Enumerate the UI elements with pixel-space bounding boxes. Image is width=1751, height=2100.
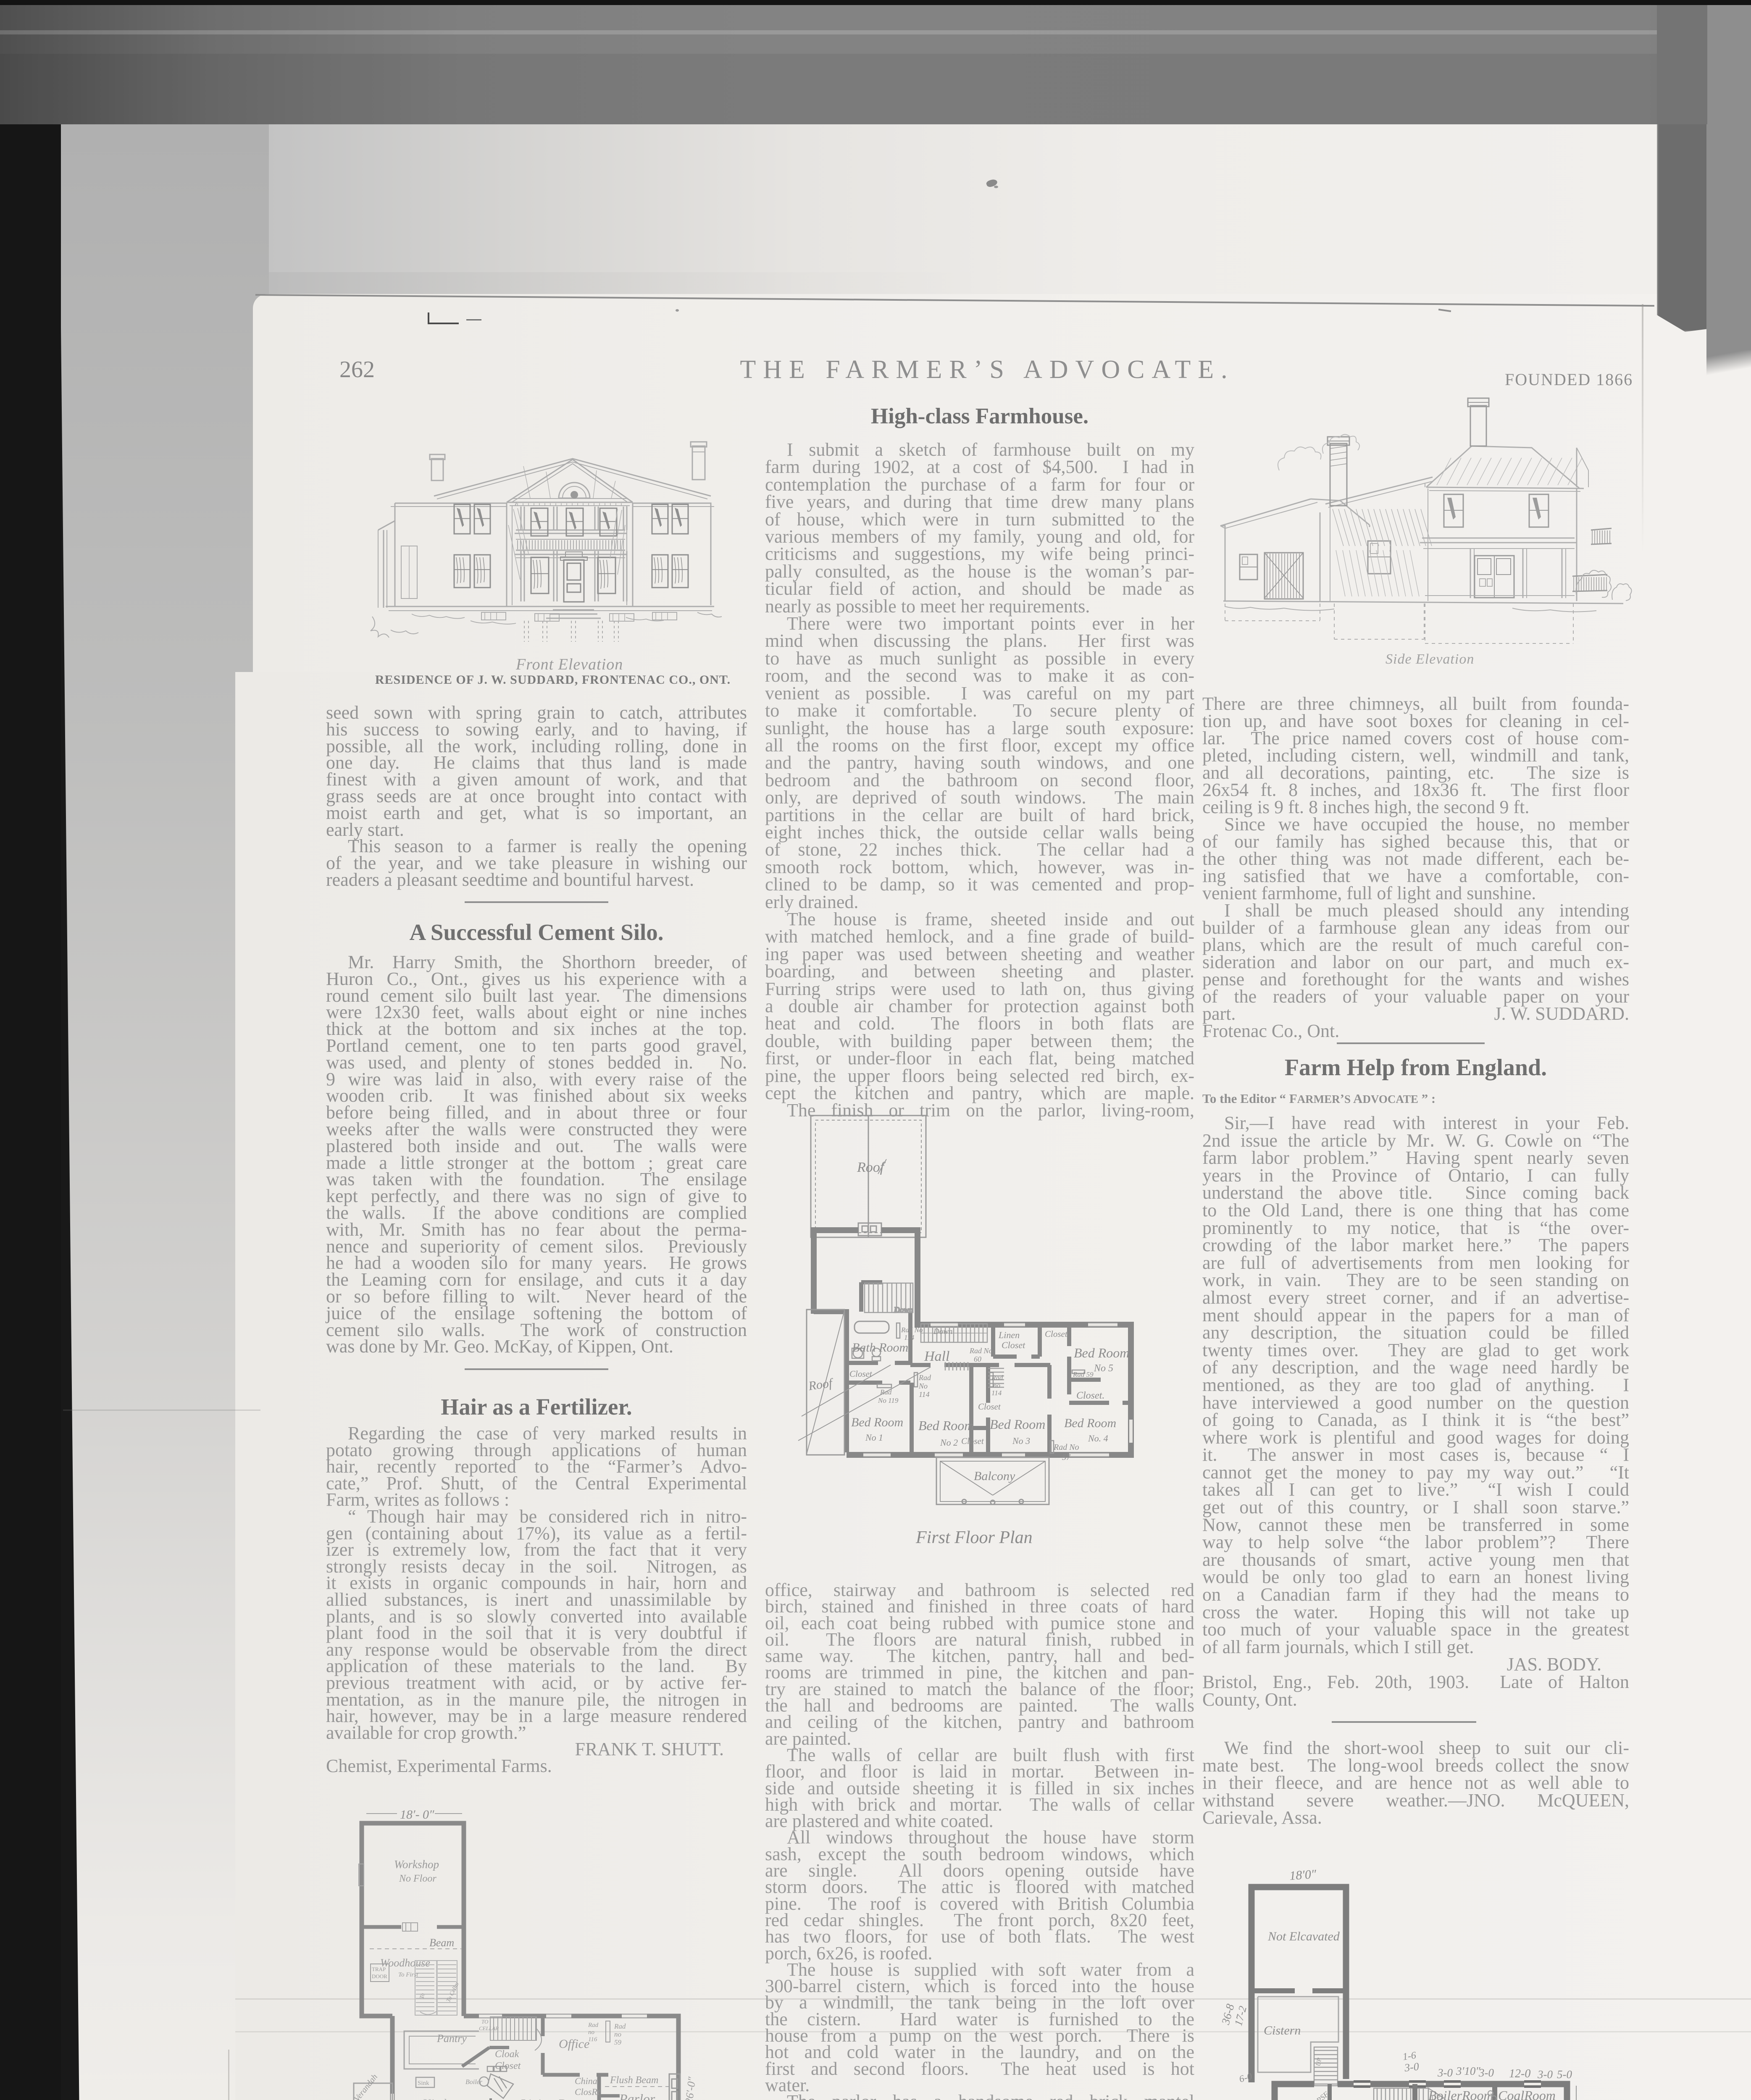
svg-text:Cloak: Cloak bbox=[495, 2049, 519, 2060]
svg-text:Rad No: Rad No bbox=[901, 1326, 923, 1334]
svg-text:Sink: Sink bbox=[418, 2080, 429, 2087]
svg-text:No 119: No 119 bbox=[878, 1396, 899, 1404]
svg-text:CoalRoom: CoalRoom bbox=[1498, 2088, 1556, 2100]
svg-text:ClosRt: ClosRt bbox=[575, 2087, 600, 2097]
svg-text:Down: Down bbox=[933, 1327, 952, 1336]
svg-text:18′0″: 18′0″ bbox=[1289, 1867, 1317, 1883]
svg-text:BoilerRoom: BoilerRoom bbox=[1428, 2088, 1493, 2100]
svg-text:CELLAR: CELLAR bbox=[479, 2025, 499, 2032]
svg-text:Hall: Hall bbox=[924, 1349, 949, 1364]
svg-text:Kitchen: Kitchen bbox=[422, 2097, 461, 2100]
svg-text:First Floor Plan: First Floor Plan bbox=[915, 1528, 1033, 1547]
svg-text:Woodhouse: Woodhouse bbox=[380, 1957, 430, 1969]
svg-text:Linen: Linen bbox=[998, 1330, 1020, 1340]
svg-text:Rad: Rad bbox=[918, 1373, 931, 1382]
svg-text:Parlor: Parlor bbox=[619, 2091, 655, 2100]
svg-text:Not Elcavated: Not Elcavated bbox=[1267, 1929, 1340, 1943]
svg-text:Verandah: Verandah bbox=[352, 2072, 380, 2100]
svg-text:3-0: 3-0 bbox=[1537, 2068, 1553, 2081]
svg-text:DOOR: DOOR bbox=[372, 1973, 387, 1979]
svg-text:Closet: Closet bbox=[1002, 1340, 1025, 1350]
svg-text:Bath Room: Bath Room bbox=[852, 1341, 908, 1354]
svg-text:Bed Room: Bed Room bbox=[1064, 1416, 1116, 1430]
svg-text:Living Room: Living Room bbox=[520, 2096, 589, 2100]
svg-text:Rad 59: Rad 59 bbox=[1073, 1370, 1094, 1378]
svg-text:Pantry: Pantry bbox=[436, 2032, 467, 2045]
svg-text:5-0: 5-0 bbox=[1557, 2068, 1572, 2081]
svg-text:Rad No: Rad No bbox=[969, 1347, 993, 1355]
svg-text:18′- 0″: 18′- 0″ bbox=[400, 1808, 434, 1822]
svg-text:To: To bbox=[419, 1993, 426, 2000]
svg-text:57: 57 bbox=[1062, 1453, 1071, 1462]
svg-text:26′-0″: 26′-0″ bbox=[683, 2076, 698, 2100]
svg-text:Closet: Closet bbox=[978, 1402, 1001, 1412]
svg-text:Bed Room: Bed Room bbox=[1074, 1345, 1129, 1360]
svg-text:Rad: Rad bbox=[614, 2022, 626, 2030]
svg-text:3-0: 3-0 bbox=[1478, 2066, 1494, 2079]
svg-text:Beam: Beam bbox=[429, 1937, 454, 1949]
svg-text:Rad No: Rad No bbox=[1053, 1443, 1079, 1452]
svg-text:TRAP: TRAP bbox=[372, 1966, 386, 1972]
svg-text:Flush Beam: Flush Beam bbox=[610, 2075, 658, 2086]
svg-text:Rad: Rad bbox=[991, 1374, 1003, 1382]
svg-text:114: 114 bbox=[919, 1390, 930, 1399]
svg-text:116: 116 bbox=[588, 2036, 597, 2043]
svg-text:Workshop: Workshop bbox=[394, 1858, 439, 1871]
svg-text:60: 60 bbox=[974, 1355, 981, 1363]
svg-text:To Cellar: To Cellar bbox=[445, 1980, 461, 2003]
svg-text:No. 4: No. 4 bbox=[1088, 1433, 1108, 1444]
svg-text:59: 59 bbox=[614, 2038, 622, 2046]
svg-text:Bed Room: Bed Room bbox=[918, 1418, 974, 1433]
svg-text:3′10″: 3′10″ bbox=[1456, 2065, 1480, 2077]
svg-text:3-0: 3-0 bbox=[1437, 2066, 1453, 2079]
svg-text:Cistern: Cistern bbox=[1264, 2024, 1301, 2037]
svg-text:UP: UP bbox=[1315, 2057, 1323, 2066]
svg-text:Front Elevation: Front Elevation bbox=[515, 656, 623, 673]
svg-text:No 2: No 2 bbox=[940, 1437, 958, 1448]
svg-text:114: 114 bbox=[991, 1389, 1002, 1397]
svg-text:12-0: 12-0 bbox=[1509, 2067, 1530, 2080]
svg-text:Closet: Closet bbox=[849, 1369, 873, 1379]
svg-text:Balcony: Balcony bbox=[974, 1469, 1015, 1483]
svg-text:TO: TO bbox=[481, 2019, 489, 2025]
svg-text:No 1: No 1 bbox=[865, 1432, 883, 1443]
svg-text:114: 114 bbox=[904, 1333, 915, 1341]
svg-text:no: no bbox=[614, 2030, 621, 2038]
svg-text:no: no bbox=[993, 1381, 1000, 1389]
svg-text:no: no bbox=[588, 2029, 595, 2036]
svg-text:Closet.: Closet. bbox=[1076, 1390, 1104, 1401]
svg-text:Down: Down bbox=[894, 1306, 913, 1315]
svg-text:No Floor: No Floor bbox=[399, 1873, 436, 1884]
svg-text:Rad: Rad bbox=[588, 2022, 599, 2029]
svg-text:Boiler: Boiler bbox=[465, 2079, 483, 2086]
svg-text:No: No bbox=[918, 1382, 928, 1390]
svg-text:Closet: Closet bbox=[1045, 1329, 1068, 1339]
svg-text:Bed Room: Bed Room bbox=[851, 1415, 903, 1429]
svg-text:No 3: No 3 bbox=[1012, 1436, 1030, 1446]
svg-text:Side Elevation: Side Elevation bbox=[1386, 651, 1474, 667]
svg-text:China: China bbox=[575, 2076, 597, 2086]
svg-text:Bed Room: Bed Room bbox=[990, 1417, 1045, 1432]
svg-text:Roof: Roof bbox=[807, 1376, 834, 1393]
svg-text:Closet: Closet bbox=[961, 1436, 984, 1446]
svg-text:No 5: No 5 bbox=[1094, 1363, 1113, 1374]
svg-text:Office: Office bbox=[559, 2037, 589, 2051]
svg-text:Rad: Rad bbox=[880, 1388, 892, 1396]
svg-text:3-0: 3-0 bbox=[1404, 2061, 1420, 2074]
